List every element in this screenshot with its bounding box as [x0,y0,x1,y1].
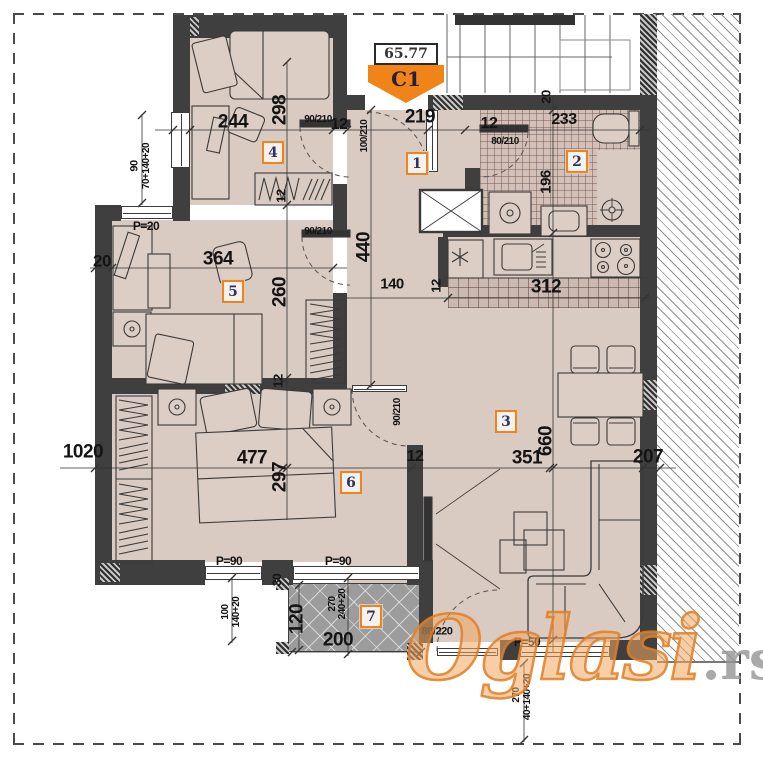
room-badge-7: 7 [360,605,382,628]
dim-label: 196 [539,170,554,194]
dim-label: 70+140+20 [142,143,152,189]
stairs [447,14,630,93]
pillow [258,388,312,431]
dim-label: 233 [551,112,576,128]
area-tag-value: 65.77 [374,43,438,65]
dim-label: 298 [271,95,290,125]
room5-door-swing [302,237,350,285]
dim-label: 80/210 [491,137,519,147]
dim-label: 12 [430,279,443,292]
chair [571,418,599,445]
plan-graphics [0,0,763,761]
terrace-door-swing [437,590,498,651]
dim-label: 364 [203,250,233,269]
dim-label: 244 [218,113,248,132]
dim-label: 140 [380,277,404,292]
room-badge-5: 5 [222,280,244,303]
dim-label: 1020 [63,443,103,462]
pillow [147,334,194,385]
stairs-flight-bar [455,15,575,25]
dim-label: P=90 [216,555,242,567]
room-badge-2: 2 [566,150,588,173]
tv [424,497,432,561]
dim-label: 90/210 [304,115,332,125]
room4-door-swing [300,127,350,177]
dim-label: 297 [271,462,290,492]
dim-label: 80/220 [422,627,453,638]
dining-table [558,373,643,417]
room-badge-4: 4 [262,141,284,164]
dim-label: 12 [275,189,288,202]
vent-shaft [420,190,482,232]
dim-label: 100/210 [360,120,370,153]
bed-single [230,31,329,99]
chair [607,346,635,373]
dim-label: 40+140+20 [523,674,533,720]
dim-label: 90/210 [393,398,403,426]
dim-label: 20 [93,253,111,270]
dim-label: 100 [221,604,231,619]
dim-label: 12 [481,116,498,132]
room-badge-3: 3 [495,410,517,433]
furniture-room6 [116,384,351,563]
room-badge-1: 1 [406,152,428,175]
corner-sofa [528,461,643,638]
dim-label: P=50 [514,636,540,648]
dim-label: 140+20 [232,597,242,628]
toilet [593,114,629,143]
dim-label: 90 [130,160,141,171]
fridge [448,240,483,278]
dim-label: 207 [633,448,663,467]
dim-label: 12 [272,374,285,387]
fixtures-kitchen [443,239,648,278]
dim-label: P=90 [325,555,351,567]
shelf [148,254,170,308]
dim-label: 12 [331,117,348,133]
dim-label: 200 [323,631,353,650]
dim-label: 270 [512,687,522,702]
dim-label: 660 [537,426,556,456]
furniture-living [424,346,643,638]
dim-label: 240+20 [338,589,348,620]
dim-label: 477 [237,449,267,468]
room-badge-6: 6 [340,471,362,494]
dim-label: 20 [540,90,553,103]
dim-label: 440 [355,232,374,262]
dim-label: 312 [531,278,561,297]
dim-label: 120 [288,604,307,634]
chair [607,418,635,445]
dim-label: 30 [271,574,283,586]
dim-label: P=20 [133,220,159,232]
dim-label: 90/210 [304,227,332,237]
dim-label: 219 [405,108,435,127]
floor-plan: 24429812219122332090/210100/21080/210196… [0,0,763,761]
pillow [200,388,258,436]
dim-label: 12 [407,449,424,465]
dim-label: 260 [271,277,290,307]
chair [571,346,599,373]
